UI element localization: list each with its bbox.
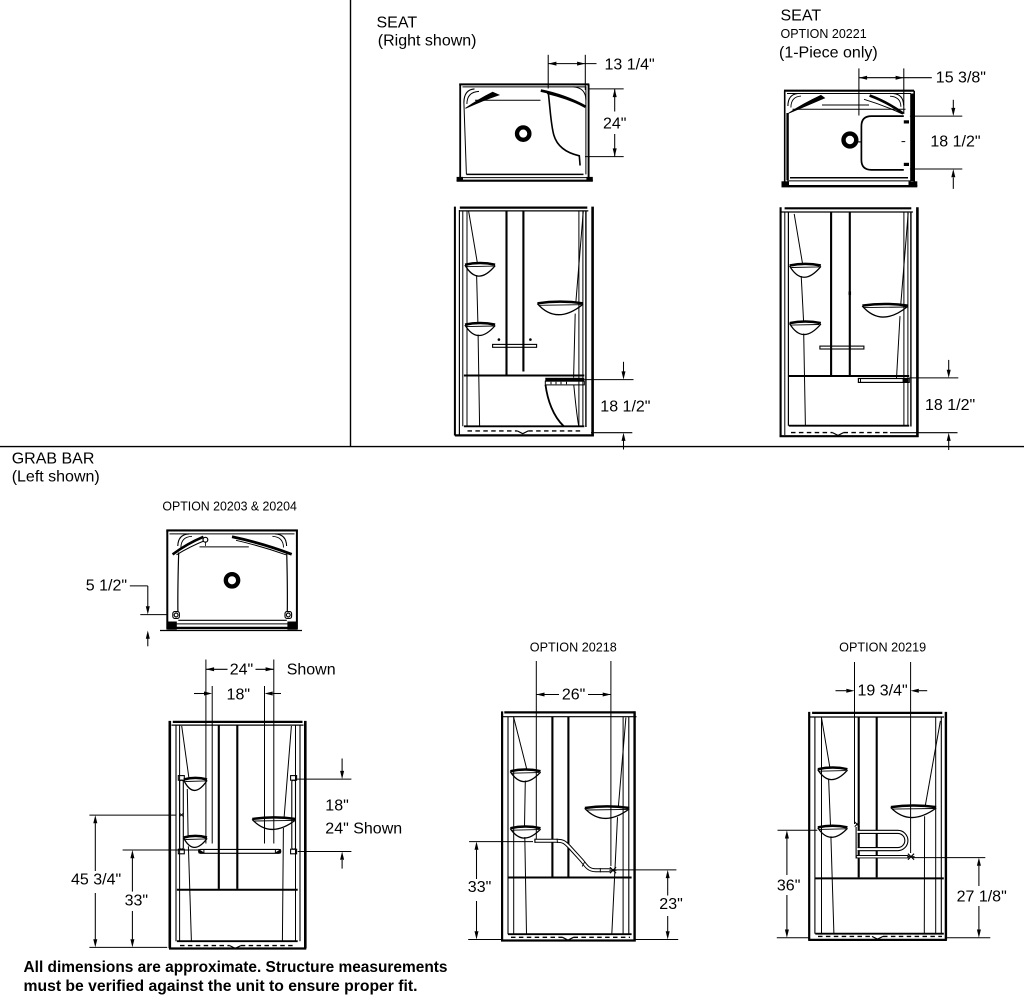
svg-text:5 1/2": 5 1/2" (86, 578, 127, 595)
svg-text:24" Shown: 24" Shown (325, 820, 402, 837)
svg-text:18 1/2": 18 1/2" (600, 399, 650, 416)
svg-text:GRAB BAR: GRAB BAR (12, 451, 95, 468)
svg-text:OPTION 20218: OPTION 20218 (530, 640, 617, 654)
svg-text:All dimensions are approximate: All dimensions are approximate. Structur… (24, 959, 448, 976)
svg-text:27 1/8": 27 1/8" (957, 888, 1007, 905)
svg-text:(Left shown): (Left shown) (12, 469, 100, 486)
svg-text:18 1/2": 18 1/2" (925, 397, 975, 414)
svg-text:must be verified against the u: must be verified against the unit to ens… (24, 978, 418, 995)
svg-text:SEAT: SEAT (377, 14, 418, 31)
svg-text:(Right shown): (Right shown) (378, 33, 477, 50)
svg-text:SEAT: SEAT (781, 8, 822, 25)
svg-text:33": 33" (468, 879, 491, 896)
svg-text:24": 24" (603, 116, 626, 133)
svg-text:(1-Piece only): (1-Piece only) (779, 45, 878, 62)
svg-text:OPTION 20219: OPTION 20219 (839, 641, 926, 655)
svg-text:15 3/8": 15 3/8" (936, 70, 986, 87)
svg-text:45 3/4": 45 3/4" (71, 871, 121, 888)
svg-text:18": 18" (227, 686, 250, 703)
svg-text:26": 26" (562, 686, 585, 703)
svg-text:19 3/4": 19 3/4" (858, 683, 908, 700)
svg-text:23": 23" (659, 896, 682, 913)
svg-text:36": 36" (777, 877, 800, 894)
svg-text:18": 18" (325, 797, 348, 814)
svg-text:24": 24" (230, 662, 253, 679)
svg-text:13 1/4": 13 1/4" (605, 57, 655, 74)
svg-text:OPTION 20221: OPTION 20221 (781, 27, 867, 41)
svg-text:OPTION 20203 & 20204: OPTION 20203 & 20204 (162, 499, 297, 513)
svg-text:Shown: Shown (287, 662, 336, 679)
svg-text:33": 33" (125, 893, 148, 910)
svg-text:18 1/2": 18 1/2" (930, 134, 980, 151)
